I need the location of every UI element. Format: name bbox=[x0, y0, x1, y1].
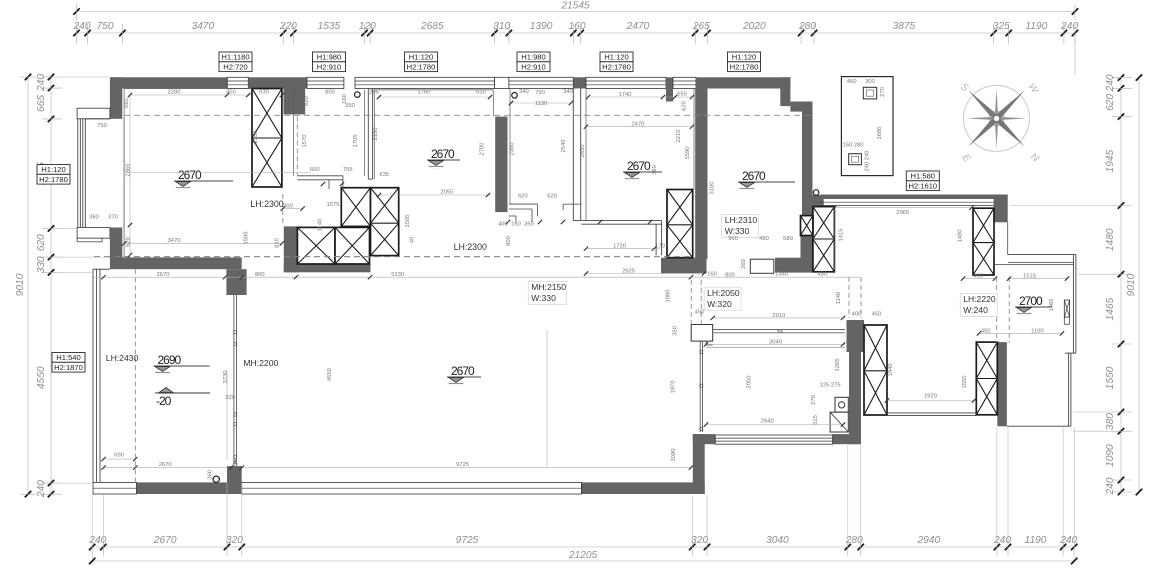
svg-text:320: 320 bbox=[225, 395, 235, 401]
svg-text:750: 750 bbox=[97, 21, 114, 32]
svg-text:1940: 1940 bbox=[888, 364, 894, 377]
svg-text:240: 240 bbox=[36, 74, 47, 92]
svg-text:H2:1870: H2:1870 bbox=[54, 363, 83, 372]
svg-text:800: 800 bbox=[325, 90, 335, 96]
svg-text:350: 350 bbox=[672, 326, 678, 336]
svg-text:220: 220 bbox=[279, 21, 297, 32]
svg-text:1515: 1515 bbox=[1023, 274, 1036, 280]
svg-text:1190: 1190 bbox=[1025, 535, 1047, 546]
svg-text:2690: 2690 bbox=[158, 353, 182, 367]
svg-text:H1:980: H1:980 bbox=[521, 53, 546, 62]
svg-text:460: 460 bbox=[847, 79, 857, 85]
svg-text:2640: 2640 bbox=[761, 419, 774, 425]
svg-text:LH:2310: LH:2310 bbox=[725, 215, 758, 225]
svg-text:1705: 1705 bbox=[353, 135, 359, 148]
svg-text:3875: 3875 bbox=[893, 21, 916, 32]
svg-text:240 240: 240 240 bbox=[865, 151, 871, 172]
svg-text:H1:120: H1:120 bbox=[732, 53, 757, 62]
svg-text:320: 320 bbox=[691, 535, 708, 546]
svg-text:2365: 2365 bbox=[126, 164, 132, 177]
svg-text:620: 620 bbox=[304, 96, 310, 106]
svg-text:480: 480 bbox=[759, 236, 769, 242]
svg-text:2700: 2700 bbox=[479, 143, 485, 156]
svg-text:1570: 1570 bbox=[302, 135, 308, 148]
svg-text:280: 280 bbox=[845, 535, 863, 546]
svg-text:450: 450 bbox=[872, 311, 882, 317]
svg-text:1130: 1130 bbox=[535, 101, 547, 107]
svg-text:2670: 2670 bbox=[431, 147, 455, 161]
svg-text:H2:1780: H2:1780 bbox=[730, 62, 759, 71]
svg-text:LH:2300: LH:2300 bbox=[454, 242, 487, 252]
svg-text:360: 360 bbox=[652, 165, 658, 175]
svg-text:2020: 2020 bbox=[742, 21, 766, 32]
svg-text:2850: 2850 bbox=[580, 145, 586, 158]
svg-text:1500: 1500 bbox=[243, 232, 249, 245]
svg-text:2670: 2670 bbox=[178, 168, 202, 182]
svg-text:2910: 2910 bbox=[772, 313, 785, 319]
svg-text:665: 665 bbox=[36, 95, 47, 112]
svg-text:1970: 1970 bbox=[671, 381, 677, 394]
svg-text:1090: 1090 bbox=[1105, 444, 1116, 467]
svg-text:240: 240 bbox=[1060, 21, 1078, 32]
svg-text:350: 350 bbox=[345, 103, 355, 109]
svg-text:295: 295 bbox=[369, 90, 379, 96]
svg-text:H2:910: H2:910 bbox=[317, 62, 342, 71]
svg-text:2470: 2470 bbox=[626, 21, 650, 32]
svg-text:3040: 3040 bbox=[769, 339, 782, 345]
svg-text:270: 270 bbox=[880, 87, 886, 97]
svg-text:H1:120: H1:120 bbox=[409, 53, 434, 62]
svg-text:21205: 21205 bbox=[568, 550, 598, 561]
svg-text:9010: 9010 bbox=[1126, 273, 1137, 296]
svg-text:450: 450 bbox=[981, 328, 991, 334]
svg-text:H2:1780: H2:1780 bbox=[39, 175, 68, 184]
svg-text:2150: 2150 bbox=[373, 128, 379, 141]
svg-text:450: 450 bbox=[817, 272, 827, 278]
svg-text:9725: 9725 bbox=[456, 535, 479, 546]
svg-text:2670: 2670 bbox=[159, 462, 172, 468]
svg-text:LH:2300: LH:2300 bbox=[250, 199, 283, 209]
svg-text:400: 400 bbox=[852, 311, 862, 317]
svg-text:1080: 1080 bbox=[666, 290, 672, 303]
svg-text:1265: 1265 bbox=[835, 359, 841, 372]
svg-text:W:240: W:240 bbox=[963, 305, 988, 315]
svg-text:2300: 2300 bbox=[510, 143, 516, 156]
svg-text:H1:120: H1:120 bbox=[41, 165, 66, 174]
svg-text:40: 40 bbox=[409, 237, 415, 243]
svg-text:1720: 1720 bbox=[613, 244, 626, 250]
svg-text:1535: 1535 bbox=[318, 21, 341, 32]
svg-text:2150: 2150 bbox=[253, 131, 259, 144]
svg-text:-20: -20 bbox=[156, 394, 172, 408]
svg-text:240: 240 bbox=[993, 535, 1011, 546]
svg-text:340: 340 bbox=[563, 89, 573, 95]
svg-text:580: 580 bbox=[783, 236, 793, 242]
svg-text:H2:1780: H2:1780 bbox=[407, 62, 436, 71]
svg-text:2210: 2210 bbox=[676, 130, 682, 143]
svg-text:620: 620 bbox=[1105, 94, 1116, 111]
svg-text:160: 160 bbox=[511, 222, 521, 228]
svg-text:2670: 2670 bbox=[627, 159, 651, 173]
svg-text:1480: 1480 bbox=[958, 230, 964, 243]
svg-text:620: 620 bbox=[126, 237, 132, 247]
svg-text:2470: 2470 bbox=[631, 122, 644, 128]
svg-text:325: 325 bbox=[993, 21, 1010, 32]
svg-text:4550: 4550 bbox=[327, 368, 333, 381]
svg-text:1550: 1550 bbox=[1105, 366, 1116, 389]
svg-text:1740: 1740 bbox=[619, 92, 632, 98]
svg-text:W:330: W:330 bbox=[725, 226, 750, 236]
svg-text:W:330: W:330 bbox=[531, 293, 556, 303]
svg-text:1390: 1390 bbox=[530, 21, 553, 32]
svg-text:H1:1180: H1:1180 bbox=[221, 53, 249, 62]
svg-text:630: 630 bbox=[476, 90, 486, 96]
svg-text:1945: 1945 bbox=[1105, 149, 1116, 172]
svg-text:150 280: 150 280 bbox=[843, 143, 864, 149]
svg-text:H2:910: H2:910 bbox=[521, 62, 546, 71]
svg-text:2050: 2050 bbox=[441, 190, 454, 196]
svg-text:635: 635 bbox=[379, 172, 389, 178]
svg-text:800: 800 bbox=[255, 272, 265, 278]
svg-text:810: 810 bbox=[275, 238, 281, 248]
svg-text:1090: 1090 bbox=[671, 449, 677, 462]
svg-text:H1:120: H1:120 bbox=[604, 53, 629, 62]
svg-text:240: 240 bbox=[36, 480, 47, 498]
svg-text:1920: 1920 bbox=[924, 394, 937, 400]
svg-text:460: 460 bbox=[973, 274, 983, 280]
svg-text:3730: 3730 bbox=[223, 371, 229, 384]
svg-text:360: 360 bbox=[207, 470, 213, 480]
svg-text:4550: 4550 bbox=[36, 366, 47, 389]
svg-text:1550: 1550 bbox=[962, 376, 968, 389]
svg-text:790: 790 bbox=[535, 90, 545, 96]
svg-text:MH:2200: MH:2200 bbox=[243, 358, 278, 368]
svg-text:240: 240 bbox=[1105, 477, 1116, 495]
svg-text:2670: 2670 bbox=[451, 364, 475, 378]
svg-text:9725: 9725 bbox=[456, 462, 469, 468]
svg-text:3470: 3470 bbox=[168, 238, 181, 244]
svg-text:370: 370 bbox=[108, 215, 118, 221]
svg-text:260: 260 bbox=[741, 259, 747, 269]
svg-text:270: 270 bbox=[811, 395, 817, 405]
svg-text:1500: 1500 bbox=[405, 215, 411, 228]
svg-text:2670: 2670 bbox=[742, 169, 766, 183]
svg-text:320: 320 bbox=[226, 535, 243, 546]
svg-text:170: 170 bbox=[655, 244, 665, 250]
svg-text:1575: 1575 bbox=[327, 202, 340, 208]
svg-text:310: 310 bbox=[493, 21, 510, 32]
svg-text:800: 800 bbox=[725, 272, 735, 278]
svg-text:1680: 1680 bbox=[877, 127, 883, 140]
svg-text:240: 240 bbox=[73, 21, 91, 32]
svg-text:240: 240 bbox=[1105, 74, 1116, 92]
svg-text:W:320: W:320 bbox=[707, 299, 732, 309]
svg-text:620: 620 bbox=[518, 194, 528, 200]
svg-text:H2:1780: H2:1780 bbox=[602, 62, 631, 71]
svg-text:755: 755 bbox=[343, 167, 353, 173]
svg-text:1100: 1100 bbox=[1031, 328, 1043, 334]
svg-text:2280: 2280 bbox=[168, 90, 181, 96]
svg-text:960: 960 bbox=[728, 236, 738, 242]
svg-text:350: 350 bbox=[524, 222, 534, 228]
svg-text:2050: 2050 bbox=[747, 376, 753, 389]
svg-text:H2:1610: H2:1610 bbox=[908, 181, 937, 190]
svg-text:750: 750 bbox=[97, 123, 107, 129]
svg-text:1340: 1340 bbox=[775, 272, 788, 278]
svg-text:330: 330 bbox=[36, 256, 47, 273]
svg-text:800: 800 bbox=[506, 236, 512, 246]
svg-text:1140: 1140 bbox=[317, 219, 323, 231]
svg-text:300: 300 bbox=[865, 79, 875, 85]
svg-text:H1:980: H1:980 bbox=[317, 53, 342, 62]
svg-text:1465: 1465 bbox=[1049, 299, 1055, 312]
svg-text:120: 120 bbox=[359, 21, 376, 32]
svg-text:690: 690 bbox=[114, 453, 124, 459]
svg-text:380: 380 bbox=[1105, 413, 1116, 430]
svg-text:340: 340 bbox=[519, 89, 529, 95]
svg-text:650: 650 bbox=[677, 92, 687, 98]
svg-text:665: 665 bbox=[124, 98, 130, 108]
svg-text:H1:580: H1:580 bbox=[911, 172, 936, 181]
svg-text:515: 515 bbox=[813, 415, 819, 425]
svg-text:2700: 2700 bbox=[1019, 294, 1043, 308]
svg-text:1415: 1415 bbox=[838, 229, 844, 242]
svg-text:1140: 1140 bbox=[836, 292, 842, 304]
svg-text:2685: 2685 bbox=[420, 21, 444, 32]
svg-text:160: 160 bbox=[707, 272, 717, 278]
svg-text:5230: 5230 bbox=[391, 272, 404, 278]
svg-text:1480: 1480 bbox=[1105, 228, 1116, 251]
svg-text:240: 240 bbox=[88, 535, 106, 546]
svg-text:2670: 2670 bbox=[157, 272, 170, 278]
svg-text:600: 600 bbox=[310, 167, 320, 173]
svg-text:265: 265 bbox=[692, 21, 710, 32]
svg-text:LH:2430: LH:2430 bbox=[106, 353, 139, 363]
svg-text:620: 620 bbox=[547, 194, 557, 200]
svg-text:2940: 2940 bbox=[916, 535, 940, 546]
svg-text:3040: 3040 bbox=[766, 535, 789, 546]
svg-text:3470: 3470 bbox=[191, 21, 214, 32]
svg-text:160: 160 bbox=[569, 21, 586, 32]
svg-text:2965: 2965 bbox=[896, 210, 909, 216]
svg-text:2625: 2625 bbox=[622, 268, 635, 274]
svg-text:620: 620 bbox=[36, 234, 47, 251]
svg-text:3100: 3100 bbox=[709, 182, 715, 195]
svg-text:280: 280 bbox=[798, 21, 816, 32]
svg-text:2670: 2670 bbox=[153, 535, 177, 546]
svg-text:630: 630 bbox=[259, 90, 269, 96]
svg-text:LH:2050: LH:2050 bbox=[707, 288, 740, 298]
svg-text:380: 380 bbox=[89, 215, 99, 221]
svg-text:1465: 1465 bbox=[1105, 297, 1116, 320]
svg-text:240: 240 bbox=[1059, 535, 1077, 546]
svg-text:MH:2150: MH:2150 bbox=[531, 282, 566, 292]
svg-text:1190: 1190 bbox=[1025, 21, 1047, 32]
svg-text:2540: 2540 bbox=[561, 140, 567, 153]
svg-text:125 275: 125 275 bbox=[820, 382, 841, 388]
svg-text:1760: 1760 bbox=[418, 90, 431, 96]
svg-text:H2:720: H2:720 bbox=[223, 62, 248, 71]
svg-text:21545: 21545 bbox=[560, 1, 590, 12]
svg-text:LH:2220: LH:2220 bbox=[963, 294, 996, 304]
svg-text:620: 620 bbox=[681, 101, 687, 111]
svg-text:1590: 1590 bbox=[685, 147, 691, 160]
svg-text:H1:540: H1:540 bbox=[56, 353, 81, 362]
svg-text:9010: 9010 bbox=[15, 273, 26, 296]
svg-text:450: 450 bbox=[695, 310, 705, 316]
